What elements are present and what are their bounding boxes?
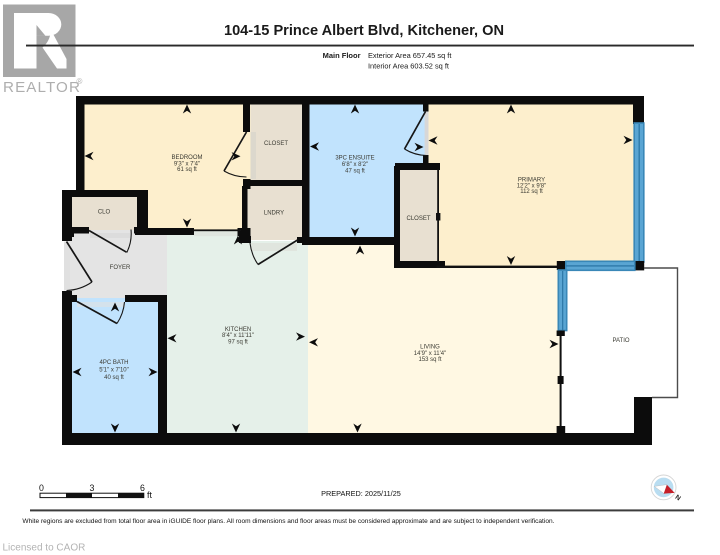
svg-text:®: ® (77, 77, 83, 86)
svg-text:ft: ft (147, 490, 152, 500)
svg-text:PREPARED: 2025/11/25: PREPARED: 2025/11/25 (321, 489, 401, 498)
svg-text:White regions are excluded fro: White regions are excluded from total fl… (22, 518, 554, 525)
svg-text:112 sq ft: 112 sq ft (520, 189, 543, 195)
svg-text:CLO: CLO (98, 210, 111, 216)
svg-text:153 sq ft: 153 sq ft (418, 357, 441, 363)
svg-text:REALTOR: REALTOR (3, 79, 81, 96)
svg-text:LIVING: LIVING (420, 345, 440, 351)
svg-text:N: N (674, 494, 682, 503)
svg-text:3: 3 (90, 483, 95, 493)
svg-text:47 sq ft: 47 sq ft (345, 169, 365, 175)
svg-text:6'8" x 8'2": 6'8" x 8'2" (342, 162, 368, 168)
svg-text:104-15 Prince Albert Blvd, Kit: 104-15 Prince Albert Blvd, Kitchener, ON (224, 23, 504, 39)
svg-text:4PC BATH: 4PC BATH (100, 360, 129, 366)
svg-text:61 sq ft: 61 sq ft (177, 167, 197, 173)
svg-text:0: 0 (39, 483, 44, 493)
svg-text:40 sq ft: 40 sq ft (104, 375, 124, 381)
svg-text:BEDROOM: BEDROOM (171, 155, 202, 161)
svg-text:97 sq ft: 97 sq ft (228, 340, 248, 346)
svg-text:PATIO: PATIO (612, 338, 629, 344)
svg-text:6: 6 (140, 483, 145, 493)
svg-text:CLOSET: CLOSET (264, 141, 288, 147)
svg-text:Licensed to CAOR: Licensed to CAOR (3, 543, 86, 554)
svg-text:8'4" x 11'11": 8'4" x 11'11" (222, 333, 254, 339)
svg-text:FOYER: FOYER (110, 265, 131, 271)
svg-text:3PC ENSUITE: 3PC ENSUITE (335, 156, 374, 162)
svg-text:Exterior Area 657.45 sq ft: Exterior Area 657.45 sq ft (368, 51, 451, 60)
svg-text:Interior Area 603.52 sq ft: Interior Area 603.52 sq ft (368, 62, 449, 71)
svg-text:5'1" x 7'10": 5'1" x 7'10" (99, 368, 129, 374)
svg-text:CLOSET: CLOSET (406, 216, 430, 222)
svg-text:Main Floor: Main Floor (323, 51, 361, 60)
svg-text:LNDRY: LNDRY (264, 211, 284, 217)
